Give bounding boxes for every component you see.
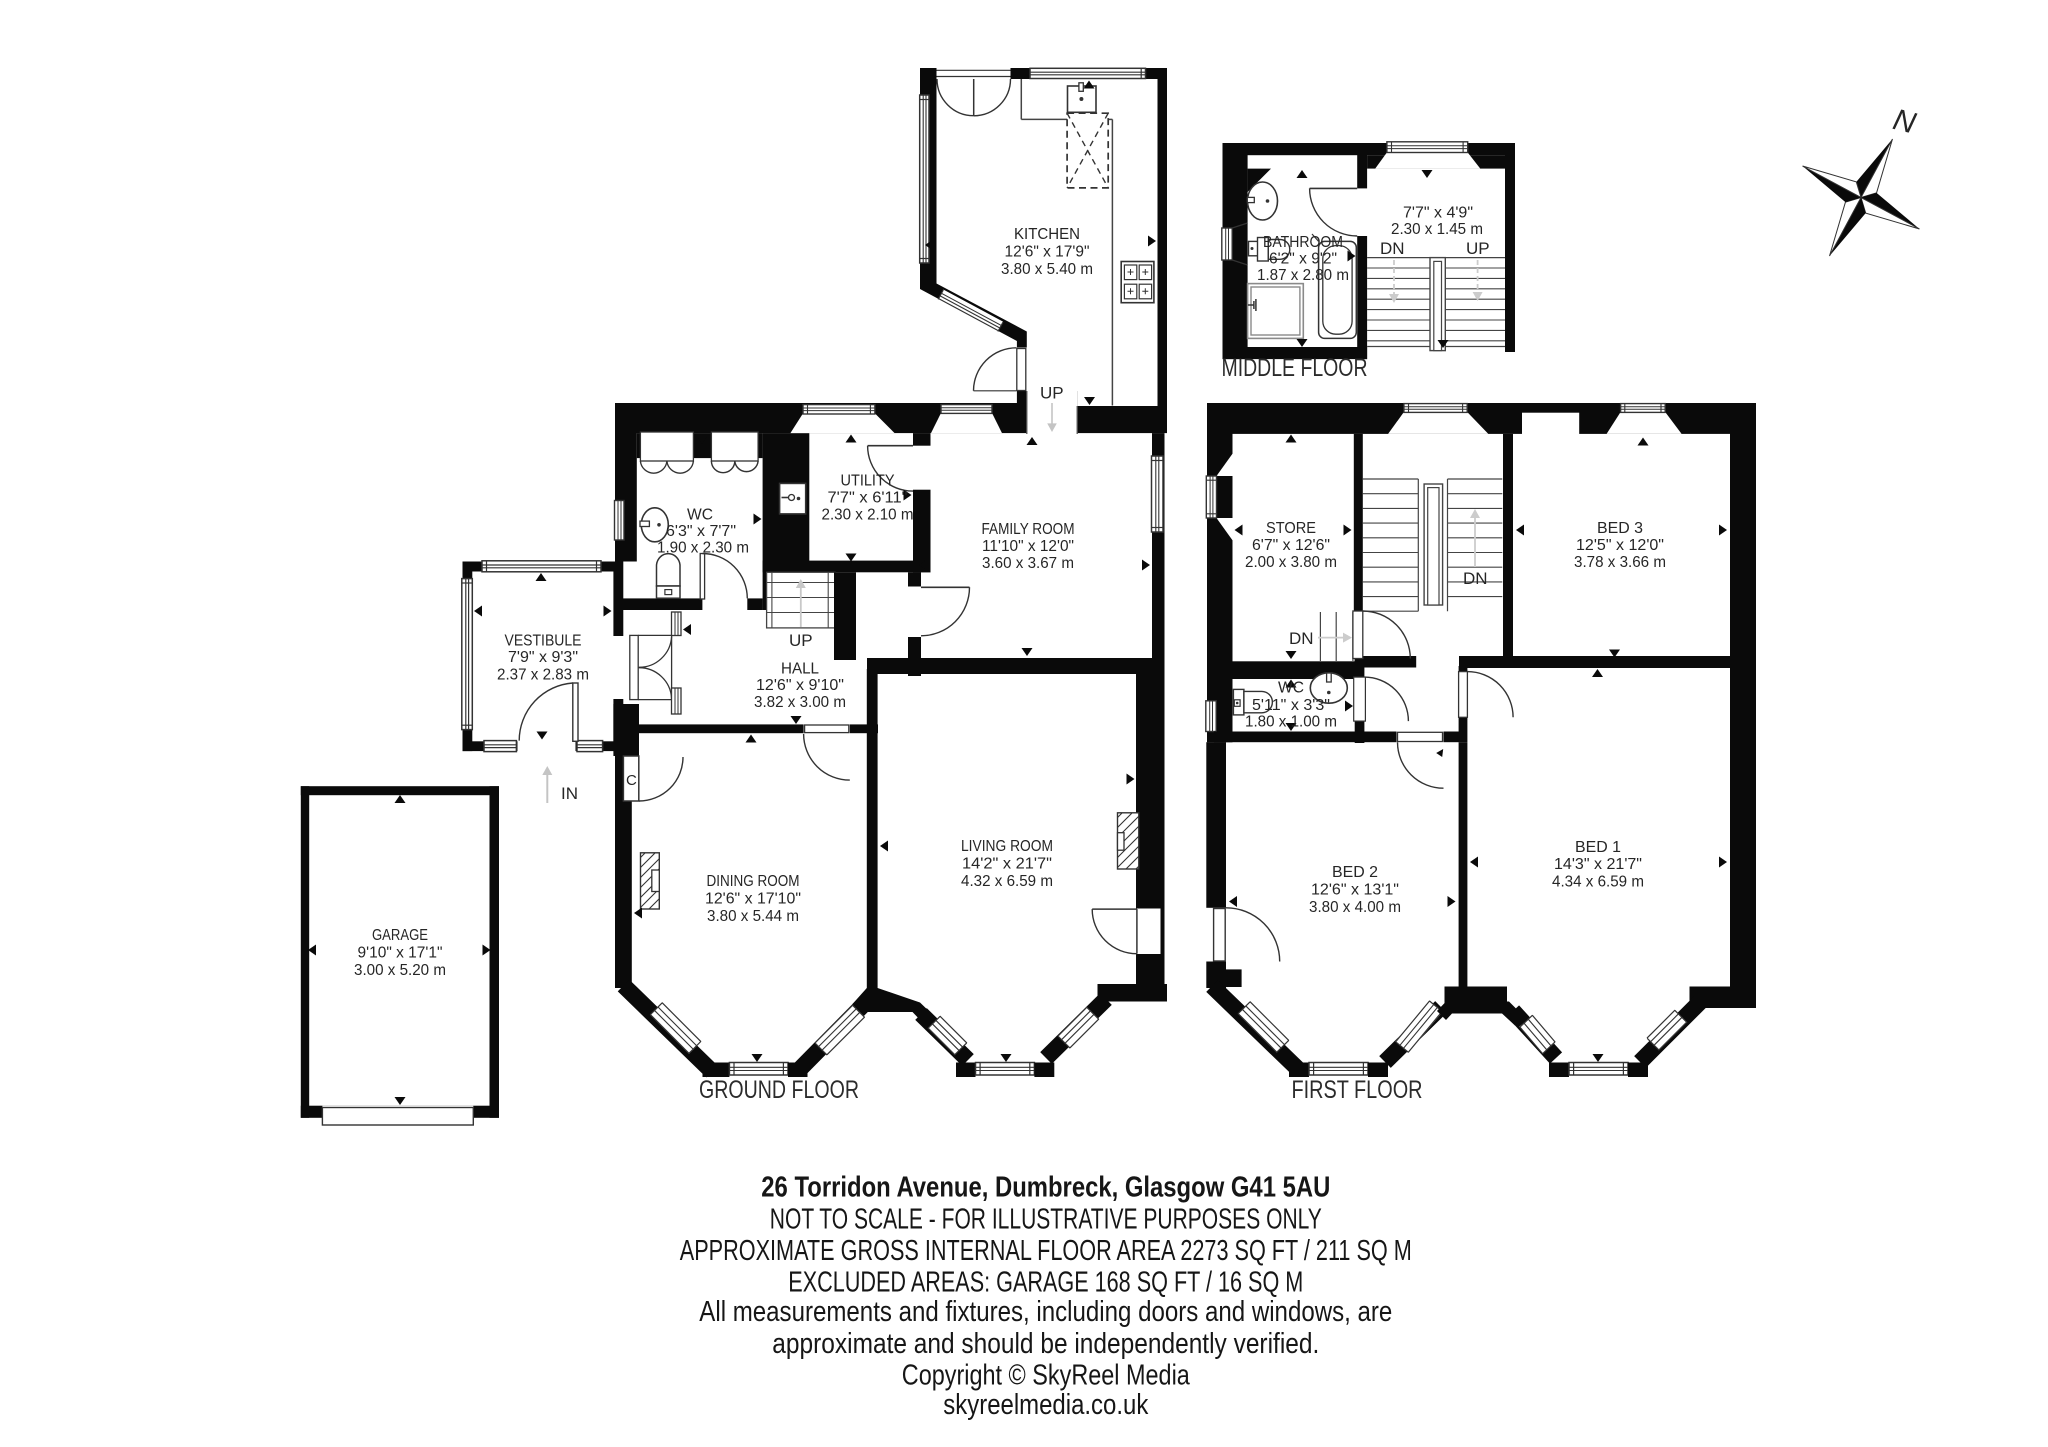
svg-text:6'3" x 7'7": 6'3" x 7'7": [666, 523, 736, 540]
svg-text:BED 2: BED 2: [1332, 864, 1378, 881]
svg-text:FIRST FLOOR: FIRST FLOOR: [1292, 1076, 1423, 1104]
svg-text:DN: DN: [1289, 629, 1314, 648]
svg-text:14'3" x 21'7": 14'3" x 21'7": [1554, 856, 1642, 873]
svg-text:2.30 x 1.45 m: 2.30 x 1.45 m: [1391, 221, 1483, 238]
svg-text:6'7" x 12'6": 6'7" x 12'6": [1252, 537, 1330, 554]
svg-text:12'6" x 17'9": 12'6" x 17'9": [1005, 244, 1090, 261]
svg-text:3.80 x 5.40 m: 3.80 x 5.40 m: [1001, 261, 1093, 278]
svg-text:1.80 x 1.00 m: 1.80 x 1.00 m: [1245, 714, 1337, 731]
svg-text:UP: UP: [1466, 239, 1490, 258]
svg-text:7'7" x 4'9": 7'7" x 4'9": [1403, 205, 1473, 222]
svg-text:2.37 x 2.83 m: 2.37 x 2.83 m: [497, 667, 589, 684]
svg-text:GROUND FLOOR: GROUND FLOOR: [699, 1076, 859, 1104]
svg-text:5'11" x 3'3": 5'11" x 3'3": [1252, 697, 1330, 714]
svg-text:UP: UP: [1040, 384, 1064, 403]
svg-text:14'2" x 21'7": 14'2" x 21'7": [962, 856, 1052, 873]
svg-text:1.87 x 2.80 m: 1.87 x 2.80 m: [1257, 267, 1349, 284]
svg-text:4.32 x 6.59 m: 4.32 x 6.59 m: [961, 873, 1053, 890]
svg-text:NOT TO SCALE - FOR ILLUSTRATIV: NOT TO SCALE - FOR ILLUSTRATIVE PURPOSES…: [770, 1203, 1322, 1235]
svg-text:3.60 x 3.67 m: 3.60 x 3.67 m: [982, 555, 1074, 572]
svg-text:STORE: STORE: [1266, 520, 1316, 537]
svg-text:MIDDLE FLOOR: MIDDLE FLOOR: [1222, 354, 1368, 382]
svg-text:WC: WC: [1278, 680, 1304, 697]
svg-text:skyreelmedia.co.uk: skyreelmedia.co.uk: [943, 1389, 1148, 1421]
svg-text:APPROXIMATE GROSS INTERNAL FLO: APPROXIMATE GROSS INTERNAL FLOOR AREA 22…: [680, 1235, 1412, 1267]
svg-text:approximate and should be inde: approximate and should be independently …: [772, 1328, 1319, 1360]
svg-text:BED 1: BED 1: [1575, 839, 1621, 856]
svg-text:EXCLUDED AREAS: GARAGE 168 SQ: EXCLUDED AREAS: GARAGE 168 SQ FT / 16 SQ…: [788, 1267, 1303, 1299]
svg-text:12'6" x 9'10": 12'6" x 9'10": [756, 677, 844, 694]
svg-text:12'6" x 17'10": 12'6" x 17'10": [705, 891, 801, 908]
svg-text:2.30 x 2.10 m: 2.30 x 2.10 m: [822, 507, 914, 524]
svg-text:4.34 x 6.59 m: 4.34 x 6.59 m: [1552, 874, 1644, 891]
svg-text:WC: WC: [687, 507, 713, 524]
svg-text:DN: DN: [1380, 239, 1405, 258]
svg-text:VESTIBULE: VESTIBULE: [505, 633, 582, 650]
svg-text:GARAGE: GARAGE: [372, 927, 428, 944]
svg-text:7'9" x 9'3": 7'9" x 9'3": [508, 649, 578, 666]
svg-text:KITCHEN: KITCHEN: [1014, 226, 1080, 243]
svg-text:3.80 x 5.44 m: 3.80 x 5.44 m: [707, 908, 799, 925]
svg-text:BATHROOM: BATHROOM: [1263, 234, 1343, 251]
svg-text:3.00 x 5.20 m: 3.00 x 5.20 m: [354, 962, 446, 979]
svg-text:9'10" x 17'1": 9'10" x 17'1": [358, 945, 443, 962]
svg-text:BED 3: BED 3: [1597, 520, 1643, 537]
svg-text:3.78 x 3.66 m: 3.78 x 3.66 m: [1574, 554, 1666, 571]
svg-text:UP: UP: [789, 631, 813, 650]
svg-text:12'6" x 13'1": 12'6" x 13'1": [1311, 882, 1399, 899]
svg-text:DN: DN: [1463, 569, 1488, 588]
svg-text:3.82 x 3.00 m: 3.82 x 3.00 m: [754, 694, 846, 711]
svg-text:HALL: HALL: [781, 661, 819, 678]
svg-text:12'5" x 12'0": 12'5" x 12'0": [1576, 537, 1664, 554]
svg-text:FAMILY ROOM: FAMILY ROOM: [982, 521, 1075, 538]
svg-text:26 Torridon Avenue, Dumbreck,: 26 Torridon Avenue, Dumbreck, Glasgow G4…: [761, 1172, 1330, 1204]
svg-text:7'7" x 6'11": 7'7" x 6'11": [828, 490, 908, 507]
svg-text:6'2" x 9'2": 6'2" x 9'2": [1269, 251, 1337, 268]
svg-text:3.80 x 4.00 m: 3.80 x 4.00 m: [1309, 899, 1401, 916]
svg-text:11'10" x 12'0": 11'10" x 12'0": [982, 538, 1074, 555]
svg-text:IN: IN: [561, 784, 578, 803]
svg-text:LIVING ROOM: LIVING ROOM: [961, 838, 1053, 855]
svg-text:2.00 x 3.80 m: 2.00 x 3.80 m: [1245, 554, 1337, 571]
svg-text:Copyright © SkyReel Media: Copyright © SkyReel Media: [902, 1360, 1191, 1392]
svg-text:All measurements and fixtures,: All measurements and fixtures, including…: [699, 1296, 1392, 1328]
svg-text:UTILITY: UTILITY: [841, 473, 895, 490]
svg-text:1.90 x 2.30 m: 1.90 x 2.30 m: [657, 540, 749, 557]
svg-text:C: C: [626, 772, 637, 789]
svg-text:DINING ROOM: DINING ROOM: [707, 873, 800, 890]
